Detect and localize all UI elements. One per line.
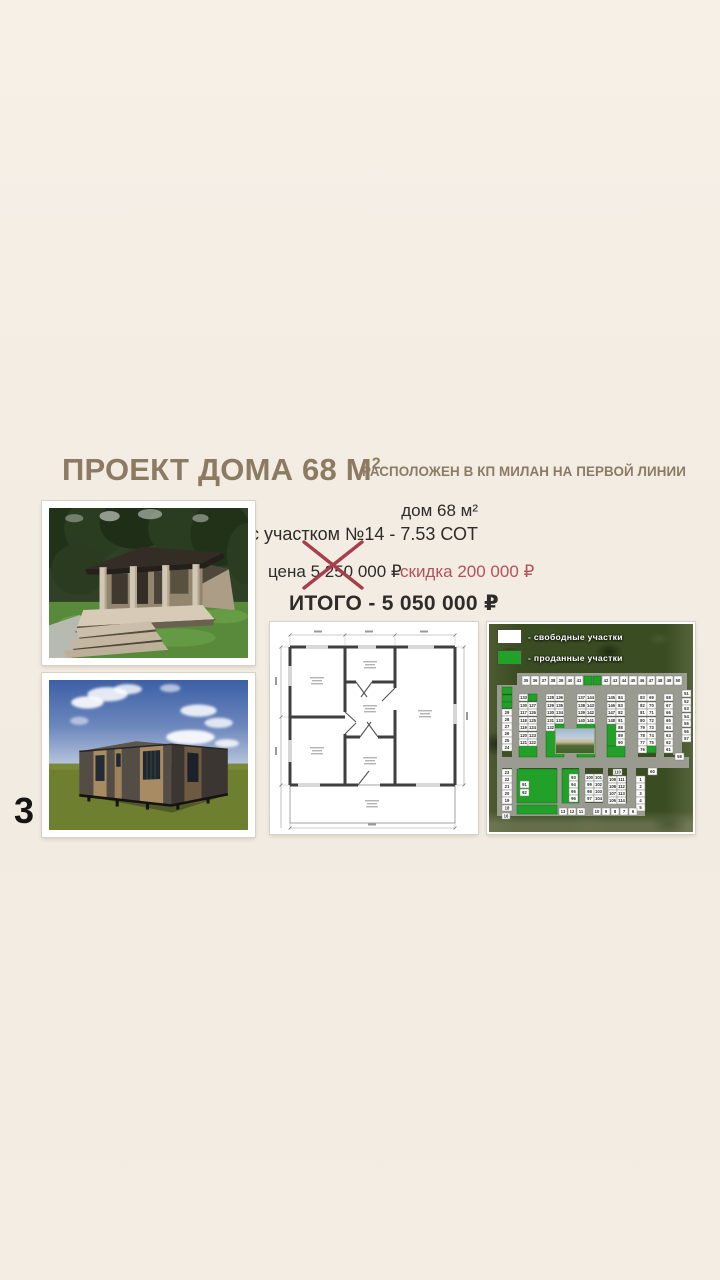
svg-text:72: 72	[649, 718, 654, 723]
svg-text:45: 45	[631, 678, 636, 683]
svg-text:39: 39	[559, 678, 564, 683]
svg-text:46: 46	[640, 678, 645, 683]
svg-text:99: 99	[587, 782, 592, 787]
svg-text:139: 139	[578, 710, 586, 715]
svg-text:118: 118	[520, 718, 527, 723]
svg-text:81: 81	[640, 710, 645, 715]
svg-text:60: 60	[650, 769, 655, 774]
svg-text:42: 42	[604, 678, 609, 683]
svg-text:127: 127	[529, 703, 537, 708]
svg-text:56: 56	[684, 729, 689, 734]
svg-text:89: 89	[618, 733, 623, 738]
svg-text:146: 146	[608, 703, 616, 708]
floor-plan-drawing	[270, 622, 478, 834]
house-render-back-image	[42, 673, 255, 837]
svg-text:117: 117	[520, 710, 527, 715]
svg-text:76: 76	[640, 747, 645, 752]
svg-text:50: 50	[676, 678, 681, 683]
svg-text:124: 124	[529, 725, 537, 730]
svg-text:74: 74	[649, 733, 654, 738]
svg-text:129: 129	[547, 703, 555, 708]
svg-text:96: 96	[571, 796, 576, 801]
svg-text:66: 66	[666, 710, 671, 715]
site-map-image: - свободные участки - проданные участки	[487, 622, 695, 834]
svg-text:47: 47	[649, 678, 654, 683]
svg-text:136: 136	[556, 695, 564, 700]
svg-text:61: 61	[666, 747, 671, 752]
svg-text:67: 67	[666, 703, 671, 708]
svg-text:75: 75	[649, 740, 654, 745]
svg-text:68: 68	[666, 695, 671, 700]
svg-text:44: 44	[622, 678, 627, 683]
svg-text:38: 38	[551, 678, 556, 683]
svg-text:138: 138	[578, 703, 586, 708]
svg-text:19: 19	[505, 798, 510, 803]
svg-text:52: 52	[684, 699, 689, 704]
svg-text:111: 111	[618, 777, 625, 782]
svg-text:40: 40	[568, 678, 573, 683]
svg-text:53: 53	[684, 706, 689, 711]
legend-sold-plots: - проданные участки	[497, 650, 623, 665]
page-title-text: ПРОЕКТ ДОМА 68 М	[62, 452, 372, 487]
legend-sold-label: - проданные участки	[528, 653, 623, 663]
sold-plot-swatch	[497, 650, 522, 665]
svg-text:126: 126	[529, 710, 537, 715]
svg-text:49: 49	[667, 678, 672, 683]
svg-text:25: 25	[505, 738, 510, 743]
svg-text:58: 58	[677, 754, 682, 759]
svg-text:98: 98	[587, 789, 592, 794]
svg-text:54: 54	[684, 714, 689, 719]
svg-text:63: 63	[666, 733, 671, 738]
svg-text:57: 57	[684, 736, 689, 741]
svg-text:77: 77	[640, 740, 645, 745]
svg-text:69: 69	[649, 695, 654, 700]
svg-text:133: 133	[520, 695, 528, 700]
svg-text:10: 10	[595, 809, 600, 814]
svg-text:135: 135	[556, 703, 564, 708]
svg-text:143: 143	[587, 703, 595, 708]
house-back-illustration	[49, 680, 248, 830]
svg-text:108: 108	[609, 784, 617, 789]
svg-text:109: 109	[609, 777, 617, 782]
svg-text:145: 145	[608, 695, 616, 700]
svg-text:23: 23	[505, 770, 510, 775]
svg-text:28: 28	[505, 717, 510, 722]
svg-text:65: 65	[666, 718, 671, 723]
svg-text:137: 137	[578, 695, 586, 700]
svg-text:97: 97	[587, 796, 592, 801]
svg-text:55: 55	[684, 721, 689, 726]
svg-text:80: 80	[640, 718, 645, 723]
svg-text:84: 84	[618, 695, 623, 700]
svg-text:101: 101	[595, 775, 603, 780]
svg-text:16: 16	[504, 814, 509, 819]
svg-text:103: 103	[595, 789, 603, 794]
svg-text:29: 29	[505, 710, 510, 715]
svg-text:113: 113	[618, 791, 625, 796]
old-price: цена 5 250 000 ₽	[268, 562, 402, 582]
svg-text:112: 112	[618, 784, 625, 789]
svg-text:93: 93	[571, 775, 576, 780]
map-legend: - свободные участки - проданные участки	[497, 629, 623, 671]
svg-text:62: 62	[666, 740, 671, 745]
site-map-aerial-photo: - свободные участки - проданные участки	[489, 624, 693, 832]
svg-text:51: 51	[684, 691, 689, 696]
flyer-page: ПРОЕКТ ДОМА 68 М2 РАСПОЛОЖЕН В КП МИЛАН …	[0, 0, 720, 1280]
svg-text:12: 12	[570, 809, 575, 814]
svg-text:141: 141	[587, 718, 595, 723]
free-plot-swatch	[497, 629, 522, 644]
svg-text:140: 140	[578, 718, 586, 723]
svg-text:82: 82	[640, 703, 645, 708]
house-area-line: дом 68 м²	[401, 501, 478, 521]
svg-text:36: 36	[533, 678, 538, 683]
svg-text:70: 70	[649, 703, 654, 708]
svg-text:107: 107	[609, 791, 617, 796]
svg-text:22: 22	[505, 777, 510, 782]
house-front-illustration	[49, 508, 248, 658]
svg-text:26: 26	[505, 731, 510, 736]
svg-text:130: 130	[547, 710, 555, 715]
svg-text:81: 81	[618, 718, 623, 723]
svg-text:130: 130	[520, 703, 528, 708]
slide-number: 3	[14, 790, 34, 832]
svg-text:102: 102	[595, 782, 603, 787]
svg-text:132: 132	[547, 725, 555, 730]
svg-text:41: 41	[577, 678, 582, 683]
svg-text:78: 78	[640, 733, 645, 738]
svg-text:147: 147	[608, 710, 616, 715]
house-render-front-image	[42, 501, 255, 665]
total-price: ИТОГО - 5 050 000 ₽	[289, 591, 499, 616]
svg-text:11: 11	[579, 809, 584, 814]
svg-text:133: 133	[556, 718, 564, 723]
svg-text:64: 64	[666, 725, 671, 730]
svg-text:20: 20	[505, 791, 510, 796]
svg-text:43: 43	[613, 678, 618, 683]
svg-text:95: 95	[571, 789, 576, 794]
svg-text:82: 82	[618, 710, 623, 715]
svg-text:83: 83	[640, 695, 645, 700]
map-inset-photo	[555, 728, 595, 754]
svg-text:18: 18	[505, 806, 510, 811]
svg-text:48: 48	[658, 678, 663, 683]
svg-text:27: 27	[505, 724, 510, 729]
svg-text:92: 92	[522, 790, 527, 795]
svg-text:100: 100	[586, 775, 594, 780]
svg-text:121: 121	[520, 740, 528, 745]
plot-line: с участком №14 - 7.53 СОТ	[250, 524, 478, 545]
svg-text:13: 13	[561, 809, 566, 814]
svg-text:148: 148	[608, 718, 616, 723]
svg-text:142: 142	[587, 710, 595, 715]
svg-text:125: 125	[529, 718, 537, 723]
page-title: ПРОЕКТ ДОМА 68 М2	[62, 452, 381, 488]
svg-text:37: 37	[542, 678, 547, 683]
svg-text:21: 21	[505, 784, 510, 789]
svg-text:94: 94	[571, 782, 576, 787]
svg-text:104: 104	[595, 796, 603, 801]
svg-text:114: 114	[618, 798, 625, 803]
svg-text:88: 88	[618, 725, 623, 730]
location-subtitle: РАСПОЛОЖЕН В КП МИЛАН НА ПЕРВОЙ ЛИНИИ	[362, 464, 702, 481]
svg-text:35: 35	[524, 678, 529, 683]
legend-free-label: - свободные участки	[528, 632, 623, 642]
svg-text:73: 73	[649, 725, 654, 730]
svg-text:123: 123	[529, 733, 537, 738]
svg-text:71: 71	[649, 710, 654, 715]
svg-text:144: 144	[587, 695, 595, 700]
floor-plan-image	[270, 622, 478, 834]
svg-text:110: 110	[614, 770, 621, 775]
discount-label: скидка 200 000 ₽	[400, 562, 534, 582]
svg-text:119: 119	[520, 725, 527, 730]
legend-free-plots: - свободные участки	[497, 629, 623, 644]
svg-text:24: 24	[505, 745, 510, 750]
svg-text:131: 131	[547, 718, 555, 723]
svg-text:79: 79	[640, 725, 645, 730]
svg-text:122: 122	[529, 740, 537, 745]
svg-text:90: 90	[618, 740, 623, 745]
svg-text:91: 91	[522, 782, 527, 787]
svg-text:134: 134	[556, 710, 564, 715]
svg-text:128: 128	[547, 695, 555, 700]
svg-text:120: 120	[520, 733, 528, 738]
svg-text:106: 106	[609, 798, 617, 803]
svg-text:83: 83	[618, 703, 623, 708]
